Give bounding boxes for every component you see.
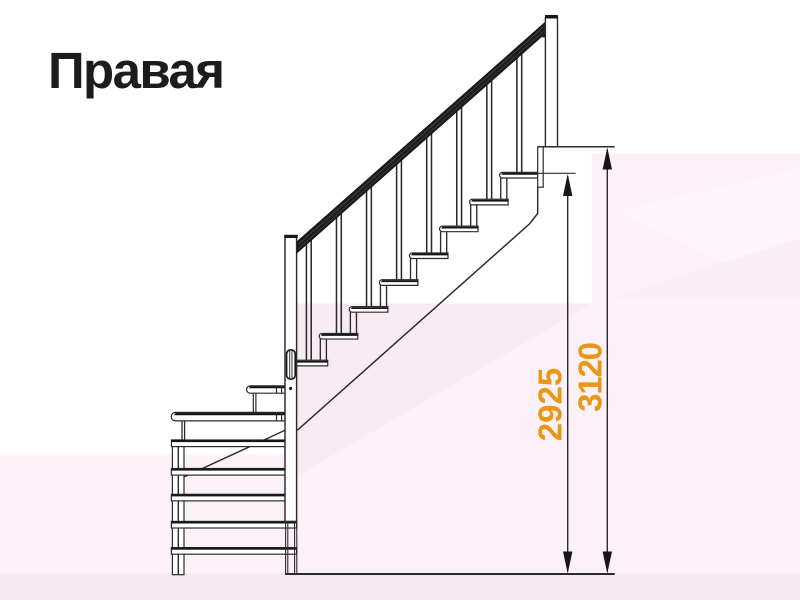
svg-text:2925: 2925 [532, 368, 569, 441]
svg-text:3120: 3120 [572, 343, 609, 412]
svg-text:Правая: Правая [48, 42, 223, 99]
